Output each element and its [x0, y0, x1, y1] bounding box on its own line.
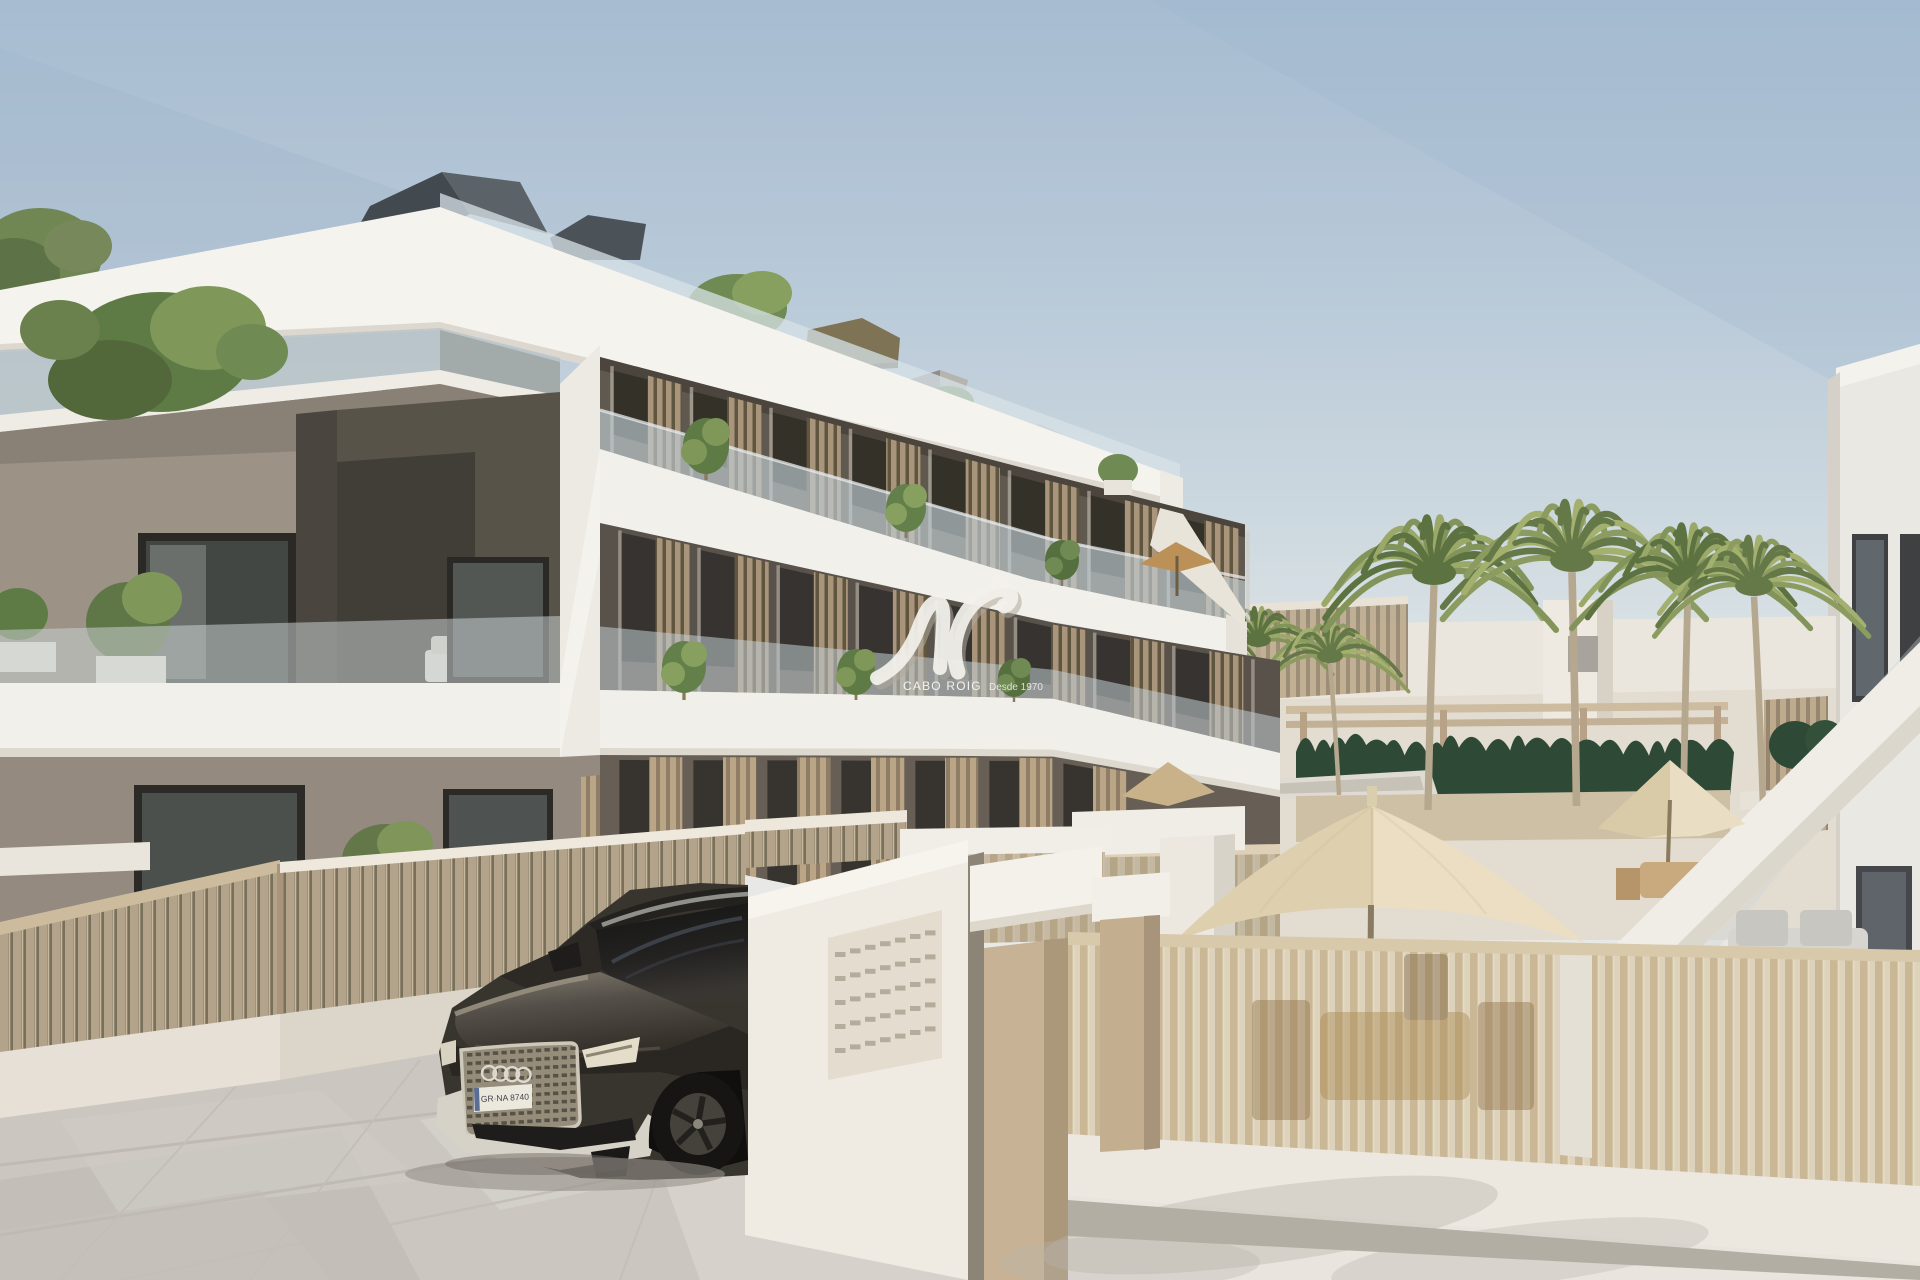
svg-text:Desde 1970: Desde 1970	[989, 682, 1043, 693]
svg-text:CABO ROIG: CABO ROIG	[903, 679, 982, 693]
